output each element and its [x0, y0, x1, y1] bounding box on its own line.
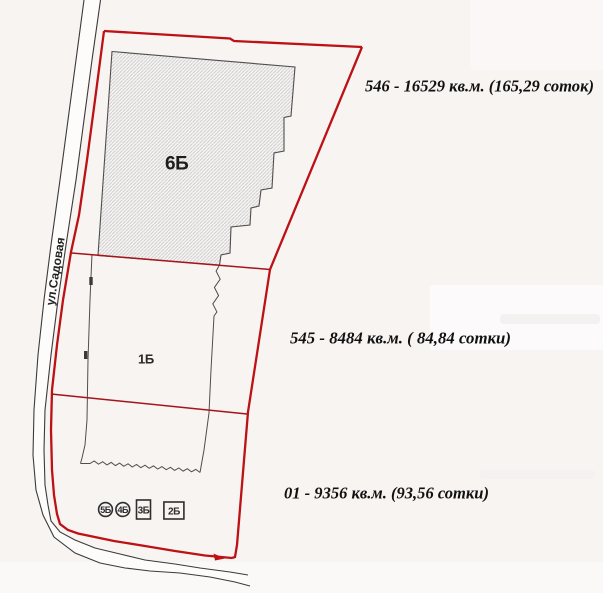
svg-text:01 - 9356 кв.м. (93,56 сотки): 01 - 9356 кв.м. (93,56 сотки) [284, 484, 489, 503]
svg-text:4Б: 4Б [118, 505, 130, 515]
svg-text:2Б: 2Б [168, 507, 180, 518]
svg-text:6Б: 6Б [165, 154, 188, 175]
svg-text:5Б: 5Б [100, 505, 112, 515]
svg-text:546 - 16529 кв.м. (165,29 сото: 546 - 16529 кв.м. (165,29 соток) [365, 77, 594, 96]
svg-text:1Б: 1Б [138, 352, 154, 367]
svg-text:545 - 8484 кв.м. ( 84,84 сотки: 545 - 8484 кв.м. ( 84,84 сотки) [290, 329, 511, 348]
svg-text:3Б: 3Б [138, 506, 150, 517]
